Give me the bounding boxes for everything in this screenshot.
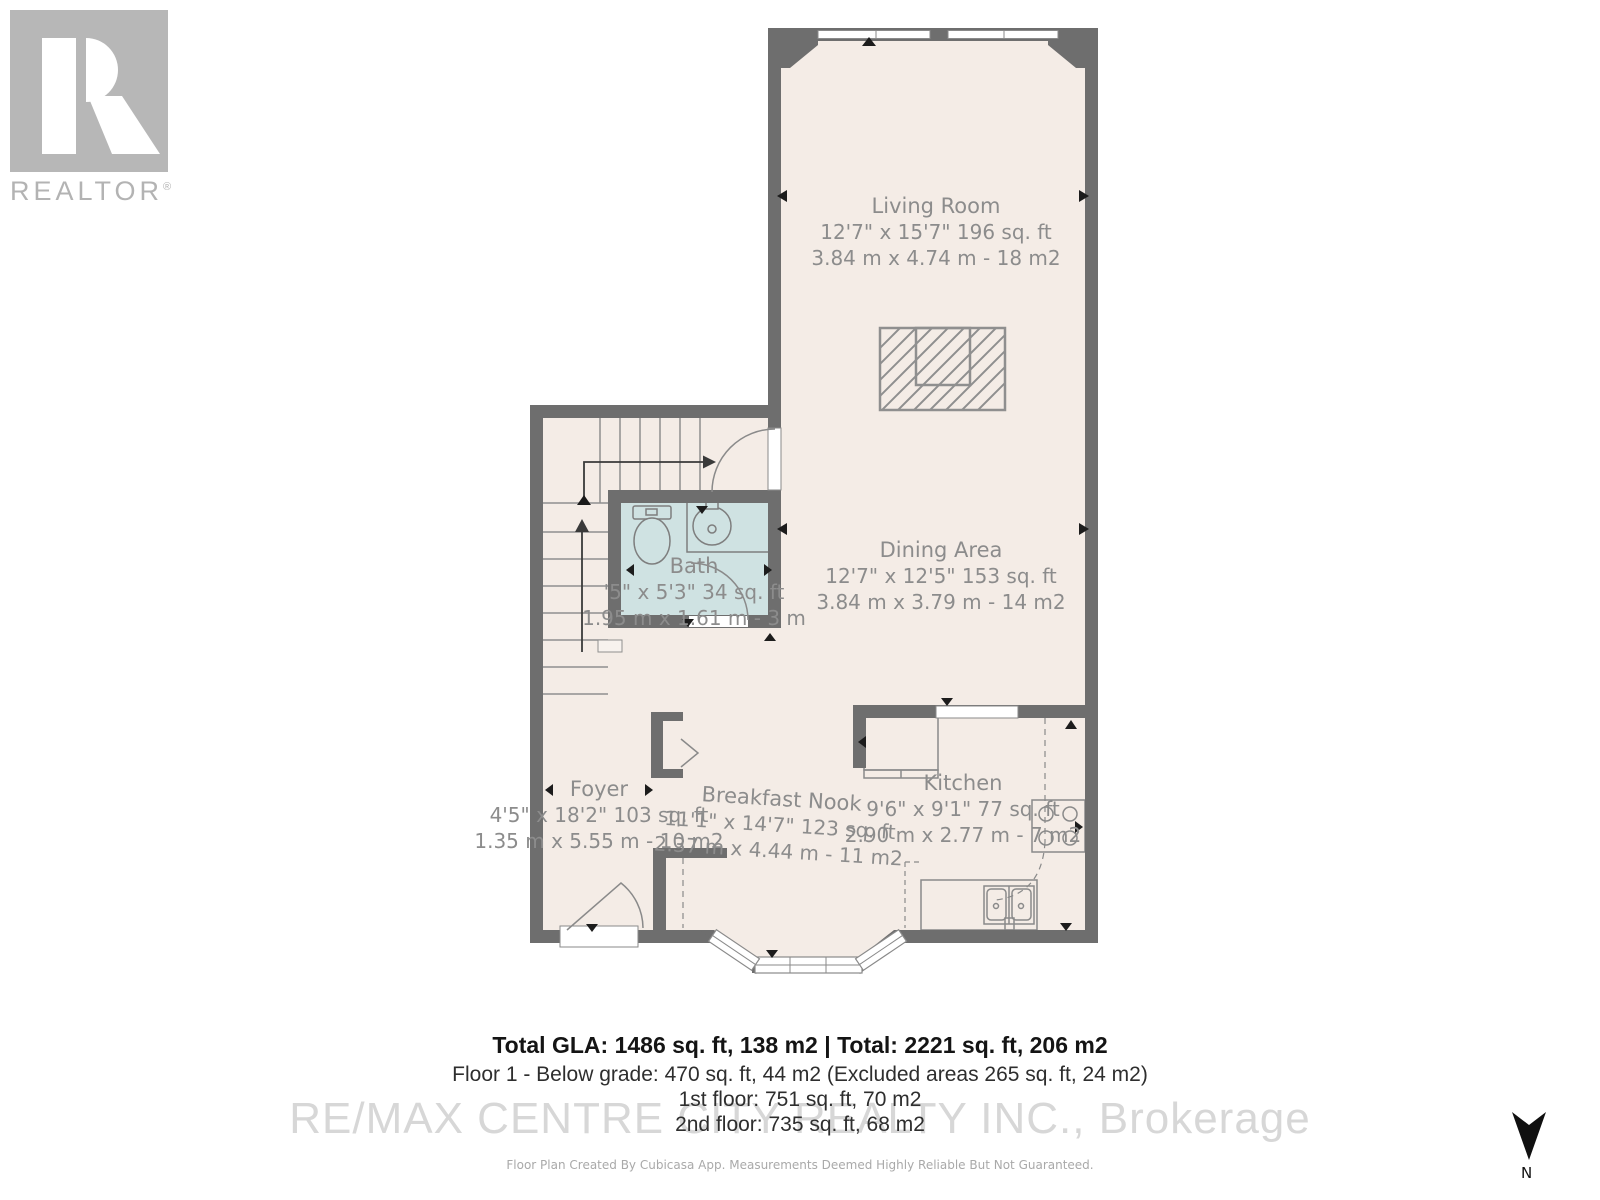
dining-area-name: Dining Area — [816, 537, 1065, 563]
bath-dims-m: 1.95 m x 1.61 m - 3 m — [582, 605, 806, 631]
living-window-left — [818, 31, 930, 39]
room-label-dining: Dining Area 12'7" x 12'5" 153 sq. ft 3.8… — [816, 537, 1065, 615]
dining-area-dims-m: 3.84 m x 3.79 m - 14 m2 — [816, 589, 1065, 615]
bath-name: Bath — [582, 553, 806, 579]
living-room-name: Living Room — [811, 193, 1060, 219]
stair-hall-door — [768, 428, 781, 490]
dining-area-dims-ft: 12'7" x 12'5" 153 sq. ft — [816, 563, 1065, 589]
realtor-wordmark: REALTOR® — [10, 176, 171, 207]
second-floor-line: 2nd floor: 735 sq. ft, 68 m2 — [452, 1112, 1148, 1137]
realtor-logo — [8, 8, 188, 183]
floor-plan-page: REALTOR® RE/MAX CENTRE CITY REALTY INC.,… — [0, 0, 1600, 1200]
bath-dims-ft: '5" x 5'3" 34 sq. ft — [582, 579, 806, 605]
north-arrow — [1512, 1112, 1546, 1160]
total-gla: Total GLA: 1486 sq. ft, 138 m2 | Total: … — [452, 1032, 1148, 1059]
kitchen-dims-m: 2.90 m x 2.77 m - 7 m2 — [845, 822, 1082, 848]
room-label-living: Living Room 12'7" x 15'7" 196 sq. ft 3.8… — [811, 193, 1060, 271]
living-room-dims-m: 3.84 m x 4.74 m - 18 m2 — [811, 245, 1060, 271]
room-label-bath: Bath '5" x 5'3" 34 sq. ft 1.95 m x 1.61 … — [582, 553, 806, 631]
entry-door-opening — [560, 926, 638, 947]
kitchen-dims-ft: 9'6" x 9'1" 77 sq. ft — [845, 796, 1082, 822]
north-label: N — [1521, 1164, 1532, 1182]
area-summary: Total GLA: 1486 sq. ft, 138 m2 | Total: … — [452, 1032, 1148, 1137]
living-room-dims-ft: 12'7" x 15'7" 196 sq. ft — [811, 219, 1060, 245]
first-floor-line: 1st floor: 751 sq. ft, 70 m2 — [452, 1087, 1148, 1112]
disclaimer-text: Floor Plan Created By Cubicasa App. Meas… — [506, 1158, 1093, 1172]
kitchen-name: Kitchen — [845, 770, 1082, 796]
below-grade-line: Floor 1 - Below grade: 470 sq. ft, 44 m2… — [452, 1062, 1148, 1087]
living-window-right — [948, 31, 1058, 39]
room-label-kitchen: Kitchen 9'6" x 9'1" 77 sq. ft 2.90 m x 2… — [845, 770, 1082, 848]
kitchen-pass-through — [936, 706, 1018, 718]
